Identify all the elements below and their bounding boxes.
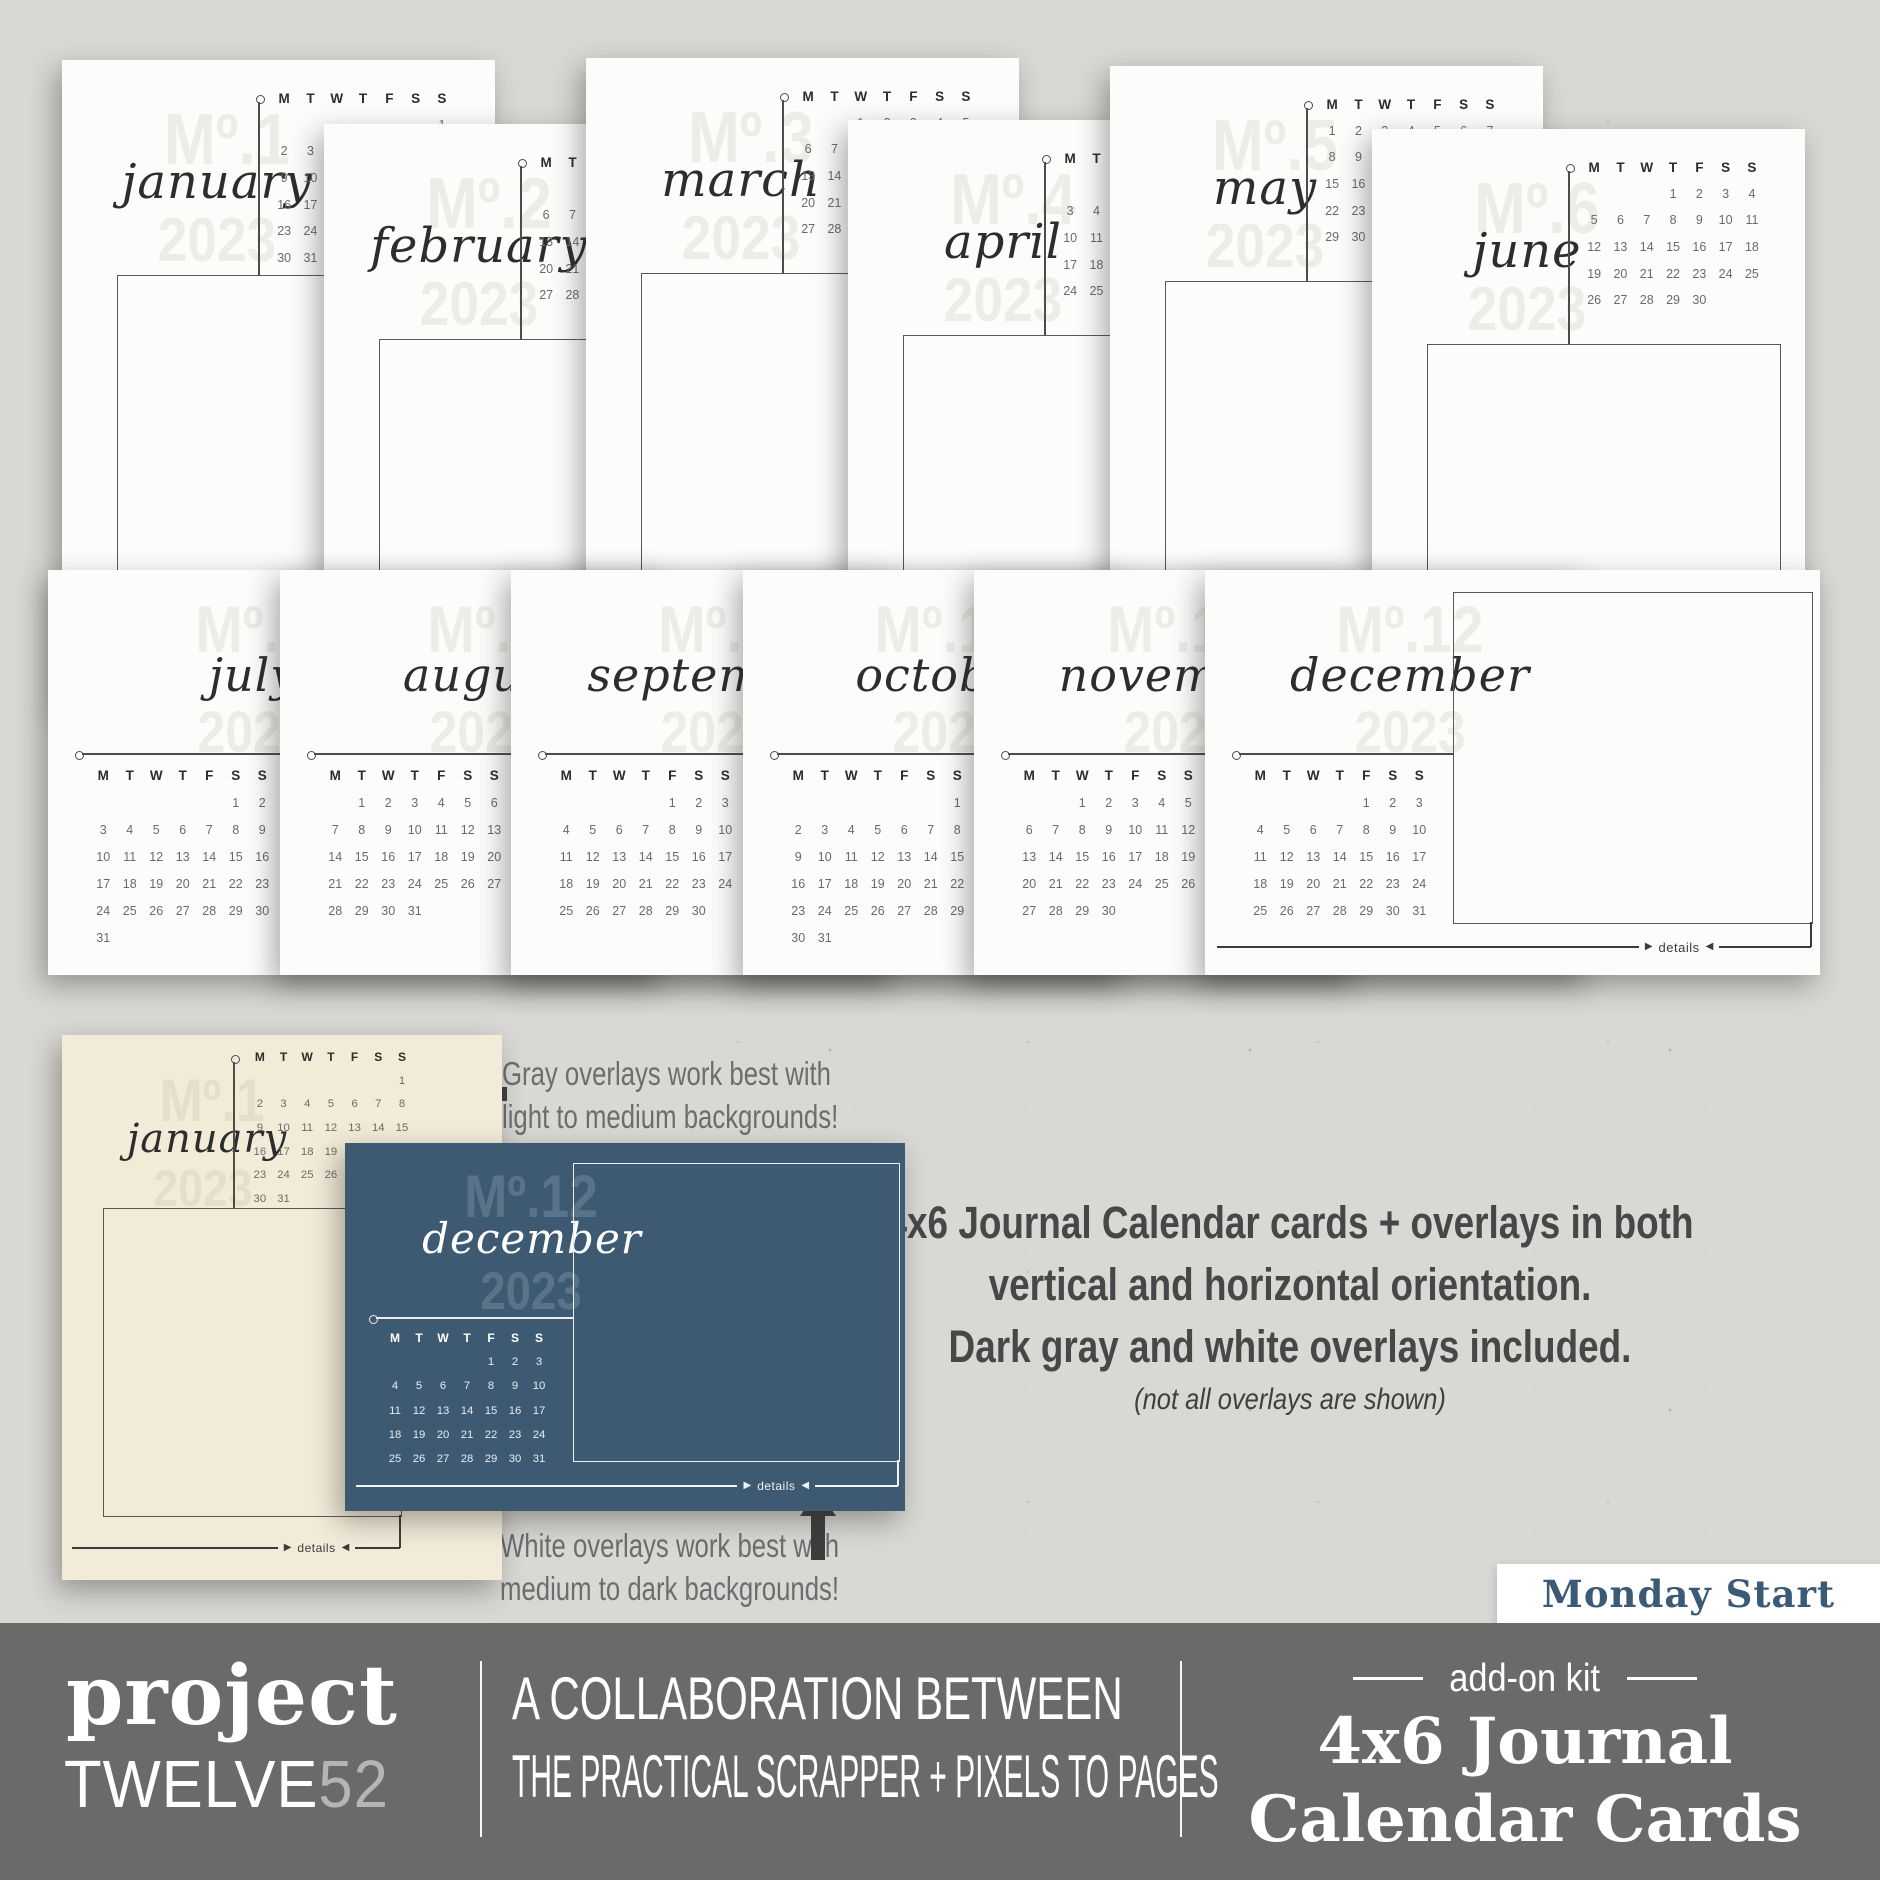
day-cell: 6: [533, 202, 559, 229]
day-cell: [606, 789, 633, 816]
day-cell: 4: [1083, 198, 1109, 225]
hanger-line: [782, 100, 784, 273]
weekday-header: T: [580, 762, 607, 789]
hanger-line: [520, 166, 522, 339]
day-cell: 28: [455, 1447, 479, 1471]
details-line-left: [356, 1485, 737, 1487]
day-cell: [865, 924, 892, 951]
weekday-header: S: [1175, 762, 1202, 789]
day-cell: 3: [1712, 181, 1738, 208]
day-cell: 9: [248, 1116, 272, 1140]
day-cell: 31: [90, 924, 117, 951]
day-cell: [1712, 287, 1738, 314]
day-cell: 30: [1686, 287, 1712, 314]
day-cell: 21: [1327, 870, 1354, 897]
day-cell: 31: [297, 245, 323, 272]
day-cell: [322, 789, 349, 816]
day-cell: 29: [659, 897, 686, 924]
day-cell: 3: [297, 138, 323, 165]
weekday-header: M: [383, 1326, 407, 1350]
details-riser: [897, 1460, 899, 1486]
brand-logo-twelve52: TWELVE52: [64, 1751, 389, 1818]
day-cell: 19: [143, 870, 170, 897]
day-cell: 13: [891, 843, 918, 870]
day-cell: 15: [659, 843, 686, 870]
day-cell: 30: [249, 897, 276, 924]
weekday-header: S: [390, 1045, 414, 1069]
day-cell: 14: [918, 843, 945, 870]
weekday-header: W: [838, 762, 865, 789]
weekday-header: M: [533, 149, 559, 176]
day-cell: 17: [527, 1399, 551, 1423]
month-grid: MTWTFSS123456789101112131415161718192021…: [383, 1326, 551, 1471]
weekday-header: T: [1043, 762, 1070, 789]
day-cell: 28: [1043, 897, 1070, 924]
details-line-right: [1719, 946, 1811, 948]
day-cell: 19: [319, 1140, 343, 1164]
day-cell: 6: [606, 816, 633, 843]
day-cell: 11: [383, 1399, 407, 1423]
weekday-header: T: [170, 762, 197, 789]
white-overlay-note-line1: White overlays work best with: [500, 1524, 839, 1567]
day-cell: 20: [1300, 870, 1327, 897]
collab-line2: THE PRACTICAL SCRAPPER + PIXELS TO PAGES: [512, 1747, 1219, 1807]
day-cell: 11: [295, 1116, 319, 1140]
day-cell: [633, 789, 660, 816]
day-cell: 16: [1345, 171, 1371, 198]
details-label: details: [757, 1480, 795, 1492]
day-cell: 20: [533, 255, 559, 282]
day-cell: 17: [812, 870, 839, 897]
weekday-header: S: [1450, 91, 1476, 118]
day-cell: [170, 924, 197, 951]
weekday-header: M: [1319, 91, 1345, 118]
day-cell: 29: [349, 897, 376, 924]
product-graphic: Mº.1january2023MTWTFSS123456789101112131…: [0, 0, 1880, 1880]
month-grid: MTWTFSS123456789101112131415161718192021…: [785, 762, 971, 951]
day-cell: 11: [1083, 225, 1109, 252]
day-cell: [1634, 181, 1660, 208]
day-cell: 7: [1043, 816, 1070, 843]
day-cell: 12: [1175, 816, 1202, 843]
weekday-header: T: [1327, 762, 1354, 789]
hanger-dot-icon: [770, 751, 779, 760]
day-cell: 19: [455, 843, 482, 870]
details-riser: [399, 1515, 401, 1548]
day-cell: 6: [170, 816, 197, 843]
day-cell: 7: [366, 1092, 390, 1116]
day-cell: 18: [553, 870, 580, 897]
day-cell: 22: [1660, 260, 1686, 287]
day-cell: 15: [1660, 234, 1686, 261]
description-line3: Dark gray and white overlays included.: [864, 1316, 1717, 1378]
white-overlay-note-line2: medium to dark backgrounds!: [500, 1567, 839, 1610]
details-pointer: ▶details◀: [356, 1478, 898, 1494]
day-cell: 24: [1712, 260, 1738, 287]
day-cell: [1043, 789, 1070, 816]
day-cell: [1057, 172, 1083, 199]
day-cell: 27: [533, 282, 559, 309]
month-grid: MTWTFSS123456789101112131415161718192021…: [1016, 762, 1202, 924]
weekday-header: S: [1149, 762, 1176, 789]
hanger-line: [1239, 753, 1453, 755]
day-cell: 4: [428, 789, 455, 816]
hanger-dot-icon: [369, 1315, 378, 1324]
day-cell: [297, 112, 323, 139]
day-cell: 26: [143, 897, 170, 924]
day-cell: 1: [944, 789, 971, 816]
day-cell: 25: [553, 897, 580, 924]
details-arrow-left-icon: ◀: [342, 1543, 350, 1553]
day-cell: 4: [117, 816, 144, 843]
day-cell: 24: [402, 870, 429, 897]
day-cell: 1: [1319, 118, 1345, 145]
weekday-header: W: [143, 762, 170, 789]
footer-divider-left: [480, 1661, 482, 1837]
weekday-header: M: [322, 762, 349, 789]
day-cell: 23: [503, 1423, 527, 1447]
details-pointer: ▶details◀: [72, 1540, 400, 1556]
day-cell: 23: [1096, 870, 1123, 897]
day-cell: 3: [1122, 789, 1149, 816]
monday-start-label: Monday Start: [1542, 1572, 1835, 1616]
weekday-header: F: [891, 762, 918, 789]
day-cell: 27: [1300, 897, 1327, 924]
addon-kit-row: add-on kit: [1205, 1659, 1845, 1698]
weekday-header: T: [1398, 91, 1424, 118]
hanger-dot-icon: [1304, 101, 1313, 110]
hanger-dot-icon: [780, 93, 789, 102]
weekday-header: T: [1083, 145, 1109, 172]
calendar-card-december-blue-overlay: Mº.12december2023MTWTFSS1234567891011121…: [345, 1143, 905, 1511]
weekday-header: M: [90, 762, 117, 789]
day-cell: [366, 1069, 390, 1093]
day-cell: 19: [580, 870, 607, 897]
day-cell: 2: [1345, 118, 1371, 145]
day-cell: 10: [297, 165, 323, 192]
day-cell: 9: [785, 843, 812, 870]
day-cell: [117, 924, 144, 951]
day-cell: 31: [1406, 897, 1433, 924]
day-cell: 16: [1096, 843, 1123, 870]
weekday-header: S: [1406, 762, 1433, 789]
weekday-header: T: [319, 1045, 343, 1069]
day-cell: [271, 112, 297, 139]
day-cell: 25: [1247, 897, 1274, 924]
day-cell: 10: [272, 1116, 296, 1140]
day-cell: 8: [659, 816, 686, 843]
day-cell: 7: [1634, 207, 1660, 234]
weekday-header: S: [455, 762, 482, 789]
weekday-header: F: [479, 1326, 503, 1350]
day-cell: 9: [375, 816, 402, 843]
day-cell: 14: [1327, 843, 1354, 870]
day-cell: 30: [1096, 897, 1123, 924]
day-cell: 28: [821, 216, 847, 243]
hanger-dot-icon: [1001, 751, 1010, 760]
day-cell: 20: [431, 1423, 455, 1447]
day-cell: 23: [248, 1163, 272, 1187]
day-cell: 25: [295, 1163, 319, 1187]
weekday-header: W: [848, 83, 874, 110]
day-cell: 17: [712, 843, 739, 870]
weekday-header: S: [918, 762, 945, 789]
day-cell: 5: [580, 816, 607, 843]
day-cell: [838, 789, 865, 816]
day-cell: 27: [891, 897, 918, 924]
weekday-header: M: [248, 1045, 272, 1069]
weekday-header: T: [350, 85, 376, 112]
details-line-right: [815, 1485, 898, 1487]
day-cell: 30: [785, 924, 812, 951]
day-cell: [891, 924, 918, 951]
day-cell: 16: [1686, 234, 1712, 261]
hanger-line: [258, 102, 260, 275]
day-cell: 7: [918, 816, 945, 843]
day-cell: [559, 176, 585, 203]
gray-overlay-note-line1: Gray overlays work best with: [502, 1052, 838, 1095]
day-cell: 14: [559, 229, 585, 256]
day-cell: 25: [1739, 260, 1765, 287]
day-cell: 22: [479, 1423, 503, 1447]
day-cell: 29: [1660, 287, 1686, 314]
day-cell: 30: [503, 1447, 527, 1471]
day-cell: 21: [821, 189, 847, 216]
day-cell: 1: [223, 789, 250, 816]
weekday-header: S: [527, 1326, 551, 1350]
white-overlay-note: White overlays work best with medium to …: [500, 1524, 935, 1610]
calendar-card-december: Mº.12december2023MTWTFSS1234567891011121…: [1205, 570, 1820, 975]
day-cell: [918, 924, 945, 951]
day-cell: 17: [1122, 843, 1149, 870]
weekday-header: T: [117, 762, 144, 789]
day-cell: 31: [402, 897, 429, 924]
hanger-dot-icon: [518, 159, 527, 168]
day-cell: 1: [390, 1069, 414, 1093]
day-cell: 4: [553, 816, 580, 843]
details-line-right: [355, 1547, 400, 1549]
weekday-header: T: [402, 762, 429, 789]
weekday-header: T: [407, 1326, 431, 1350]
day-cell: 12: [1581, 234, 1607, 261]
day-cell: 21: [455, 1423, 479, 1447]
details-arrow-left-icon: ◀: [1706, 942, 1714, 952]
day-cell: 26: [865, 897, 892, 924]
hanger-dot-icon: [538, 751, 547, 760]
day-cell: [944, 924, 971, 951]
hanger-dot-icon: [75, 751, 84, 760]
day-cell: 22: [659, 870, 686, 897]
day-cell: 4: [838, 816, 865, 843]
day-cell: 18: [117, 870, 144, 897]
day-cell: 29: [1319, 224, 1345, 251]
hanger-dot-icon: [1232, 751, 1241, 760]
day-cell: [249, 924, 276, 951]
weekday-header: M: [1581, 154, 1607, 181]
day-cell: 30: [1345, 224, 1371, 251]
day-cell: 18: [1149, 843, 1176, 870]
weekday-header: F: [343, 1045, 367, 1069]
day-cell: 24: [1406, 870, 1433, 897]
day-cell: 10: [527, 1374, 551, 1398]
day-cell: 6: [481, 789, 508, 816]
brand-number: 52: [318, 1747, 388, 1822]
day-cell: 14: [366, 1116, 390, 1140]
up-arrow-tail: [811, 1514, 825, 1560]
weekday-header: W: [431, 1326, 455, 1350]
day-cell: 26: [1581, 287, 1607, 314]
day-cell: [918, 789, 945, 816]
day-cell: 22: [349, 870, 376, 897]
weekday-header: W: [1069, 762, 1096, 789]
day-cell: 24: [272, 1163, 296, 1187]
hanger-dot-icon: [307, 751, 316, 760]
weekday-header: F: [1424, 91, 1450, 118]
day-cell: 22: [944, 870, 971, 897]
weekday-header: T: [821, 83, 847, 110]
day-cell: 21: [918, 870, 945, 897]
day-cell: 14: [821, 163, 847, 190]
day-cell: [1581, 181, 1607, 208]
addon-kit-label: add-on kit: [1450, 1659, 1601, 1698]
day-cell: 3: [272, 1092, 296, 1116]
product-description: 4x6 Journal Calendar cards + overlays in…: [770, 1192, 1810, 1422]
weekday-header: T: [633, 762, 660, 789]
day-cell: 1: [1353, 789, 1380, 816]
details-arrow-left-icon: ◀: [801, 1481, 809, 1491]
day-cell: 18: [1247, 870, 1274, 897]
weekday-header: T: [812, 762, 839, 789]
day-cell: 11: [428, 816, 455, 843]
day-cell: 5: [319, 1092, 343, 1116]
day-cell: 26: [455, 870, 482, 897]
day-cell: 23: [1345, 197, 1371, 224]
day-cell: 5: [1581, 207, 1607, 234]
day-cell: 7: [633, 816, 660, 843]
day-cell: 13: [1016, 843, 1043, 870]
day-cell: [272, 1069, 296, 1093]
day-cell: 2: [1096, 789, 1123, 816]
day-cell: 18: [428, 843, 455, 870]
day-cell: [1083, 172, 1109, 199]
day-cell: [1016, 789, 1043, 816]
day-cell: [455, 1350, 479, 1374]
gray-overlay-note-line2: light to medium backgrounds!: [502, 1095, 838, 1138]
day-cell: [196, 924, 223, 951]
day-cell: 21: [1634, 260, 1660, 287]
day-cell: [1274, 789, 1301, 816]
day-cell: [223, 924, 250, 951]
weekday-header: M: [1247, 762, 1274, 789]
brand-logo-project: project: [66, 1655, 398, 1737]
day-cell: [143, 789, 170, 816]
day-cell: 1: [659, 789, 686, 816]
day-cell: 3: [402, 789, 429, 816]
day-cell: 27: [170, 897, 197, 924]
day-cell: 16: [785, 870, 812, 897]
day-cell: [821, 110, 847, 137]
day-cell: 17: [402, 843, 429, 870]
weekday-header: M: [795, 83, 821, 110]
journal-box: [1453, 592, 1813, 924]
day-cell: 14: [322, 843, 349, 870]
weekday-header: S: [223, 762, 250, 789]
day-cell: 25: [838, 897, 865, 924]
day-cell: 9: [271, 165, 297, 192]
day-cell: [553, 789, 580, 816]
day-cell: 6: [891, 816, 918, 843]
day-cell: 9: [503, 1374, 527, 1398]
day-cell: 8: [1353, 816, 1380, 843]
day-cell: 18: [383, 1423, 407, 1447]
day-cell: [343, 1069, 367, 1093]
day-cell: 15: [349, 843, 376, 870]
day-cell: 6: [1607, 207, 1633, 234]
day-cell: 13: [481, 816, 508, 843]
weekday-header: W: [1634, 154, 1660, 181]
day-cell: 7: [821, 136, 847, 163]
day-cell: 28: [1327, 897, 1354, 924]
day-cell: 13: [795, 163, 821, 190]
day-cell: 16: [686, 843, 713, 870]
day-cell: 23: [375, 870, 402, 897]
kit-dash-left: [1353, 1677, 1423, 1680]
day-cell: 29: [223, 897, 250, 924]
day-cell: 2: [785, 816, 812, 843]
day-cell: [1739, 287, 1765, 314]
day-cell: 27: [795, 216, 821, 243]
weekday-header: S: [1380, 762, 1407, 789]
day-cell: 1: [349, 789, 376, 816]
day-cell: 8: [1660, 207, 1686, 234]
footer-divider-right: [1180, 1661, 1182, 1837]
weekday-header: M: [553, 762, 580, 789]
day-cell: 12: [865, 843, 892, 870]
collab-line1: A COLLABORATION BETWEEN: [512, 1669, 1123, 1729]
day-cell: 28: [196, 897, 223, 924]
day-cell: 8: [223, 816, 250, 843]
details-label: details: [1659, 941, 1700, 954]
day-cell: 17: [297, 191, 323, 218]
day-cell: 26: [319, 1163, 343, 1187]
day-cell: [1300, 789, 1327, 816]
day-cell: 10: [812, 843, 839, 870]
day-cell: 26: [1274, 897, 1301, 924]
day-cell: 3: [812, 816, 839, 843]
day-cell: 26: [580, 897, 607, 924]
day-cell: 6: [343, 1092, 367, 1116]
day-cell: 20: [1607, 260, 1633, 287]
day-cell: 17: [1712, 234, 1738, 261]
day-cell: 16: [271, 191, 297, 218]
day-cell: 10: [402, 816, 429, 843]
day-cell: 10: [712, 816, 739, 843]
day-cell: [712, 897, 739, 924]
day-cell: 19: [1175, 843, 1202, 870]
day-cell: 4: [295, 1092, 319, 1116]
day-cell: 17: [90, 870, 117, 897]
day-cell: 16: [1380, 843, 1407, 870]
weekday-header: T: [272, 1045, 296, 1069]
day-cell: 3: [712, 789, 739, 816]
day-cell: 16: [375, 843, 402, 870]
day-cell: 25: [1083, 278, 1109, 305]
hanger-line: [233, 1062, 235, 1208]
day-cell: 2: [271, 138, 297, 165]
day-cell: 15: [1319, 171, 1345, 198]
day-cell: 25: [428, 870, 455, 897]
day-cell: [812, 789, 839, 816]
